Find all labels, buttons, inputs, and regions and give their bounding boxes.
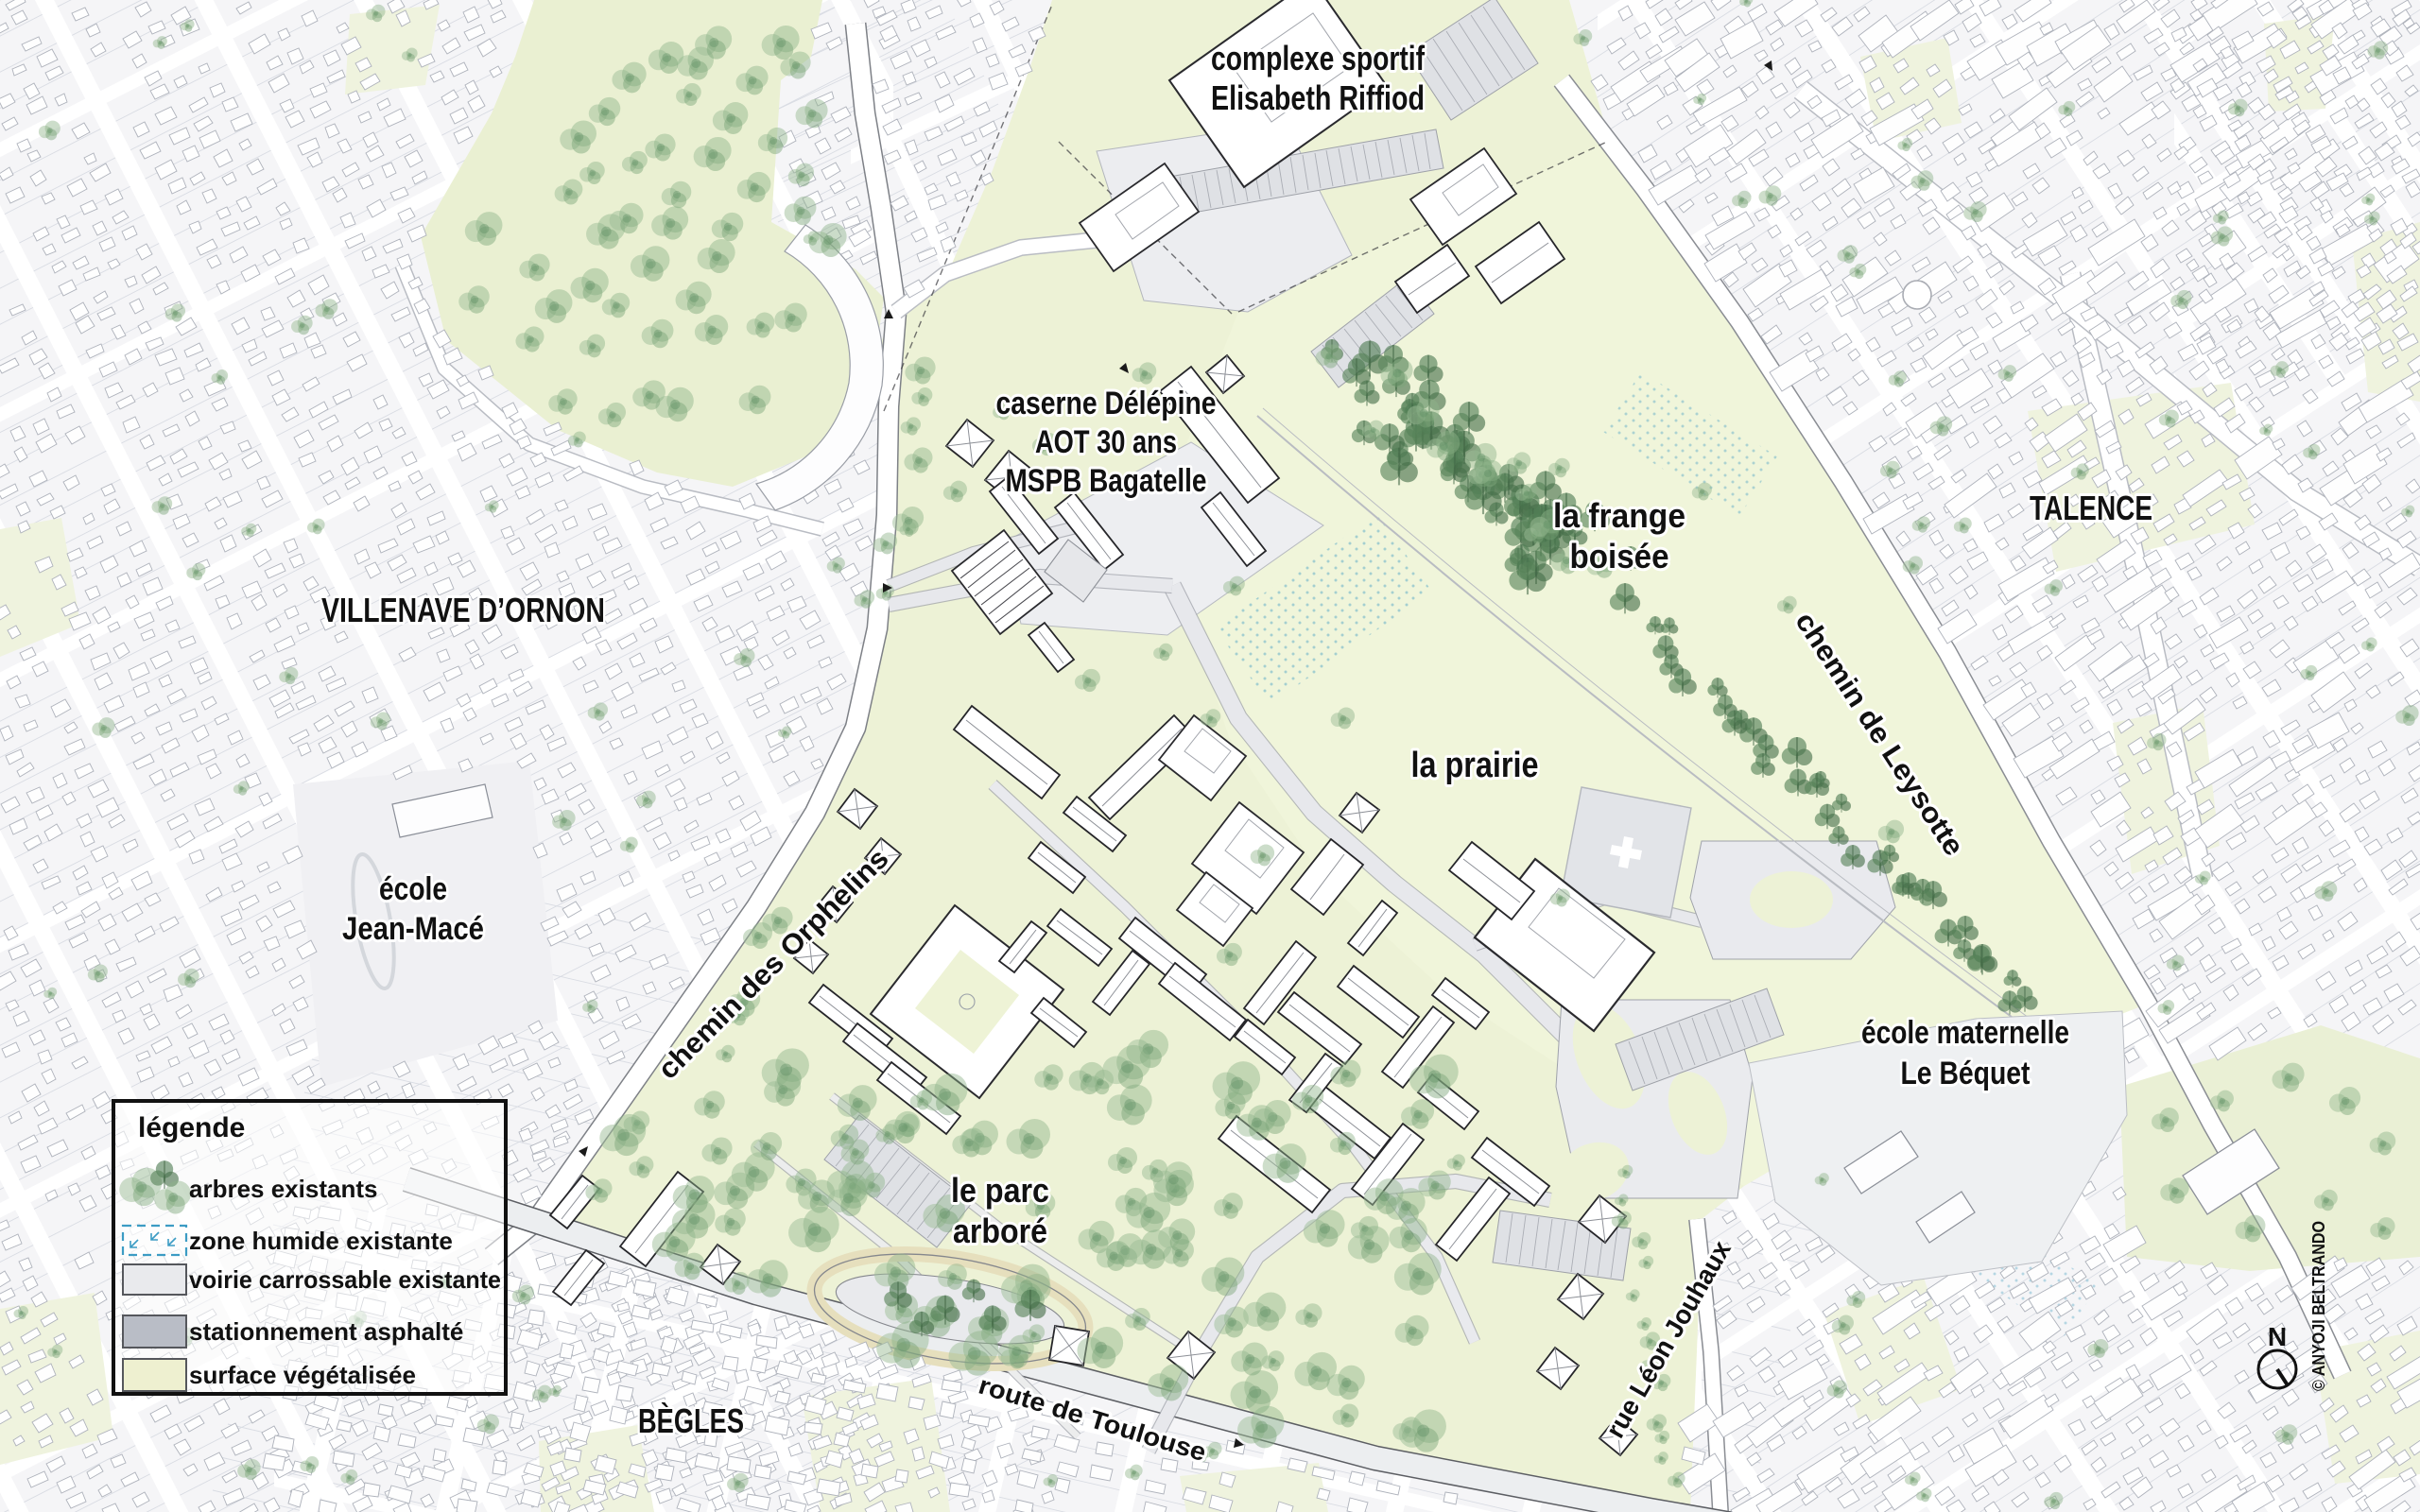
- svg-text:TALENCE: TALENCE: [2030, 489, 2152, 527]
- svg-text:arboré: arboré: [953, 1211, 1047, 1250]
- svg-text:MSPB Bagatelle: MSPB Bagatelle: [1006, 463, 1207, 499]
- svg-text:N: N: [2268, 1322, 2287, 1351]
- svg-text:légende: légende: [138, 1112, 245, 1143]
- svg-text:école: école: [379, 871, 447, 907]
- svg-text:stationnement asphalté: stationnement asphalté: [189, 1317, 463, 1346]
- svg-text:boisée: boisée: [1570, 537, 1669, 576]
- svg-text:surface végétalisée: surface végétalisée: [189, 1361, 416, 1389]
- svg-text:caserne Délépine: caserne Délépine: [996, 386, 1217, 421]
- svg-text:arbres existants: arbres existants: [189, 1175, 377, 1203]
- svg-text:le parc: le parc: [951, 1171, 1049, 1210]
- svg-text:Elisabeth Riffiod: Elisabeth Riffiod: [1211, 78, 1425, 117]
- svg-text:© ANYOJI BELTRANDO: © ANYOJI BELTRANDO: [2309, 1221, 2328, 1391]
- svg-text:AOT 30 ans: AOT 30 ans: [1035, 424, 1177, 460]
- svg-text:BÈGLES: BÈGLES: [638, 1401, 744, 1440]
- svg-text:VILLENAVE D’ORNON: VILLENAVE D’ORNON: [321, 591, 605, 629]
- svg-text:Jean-Macé: Jean-Macé: [342, 911, 484, 947]
- svg-text:voirie carrossable existante: voirie carrossable existante: [189, 1265, 501, 1294]
- svg-text:complexe sportif: complexe sportif: [1211, 39, 1426, 77]
- svg-text:la prairie: la prairie: [1411, 746, 1539, 785]
- svg-text:la frange: la frange: [1553, 496, 1685, 535]
- svg-text:zone humide existante: zone humide existante: [189, 1227, 453, 1255]
- svg-text:école maternelle: école maternelle: [1861, 1015, 2069, 1051]
- svg-text:Le Béquet: Le Béquet: [1901, 1056, 2031, 1091]
